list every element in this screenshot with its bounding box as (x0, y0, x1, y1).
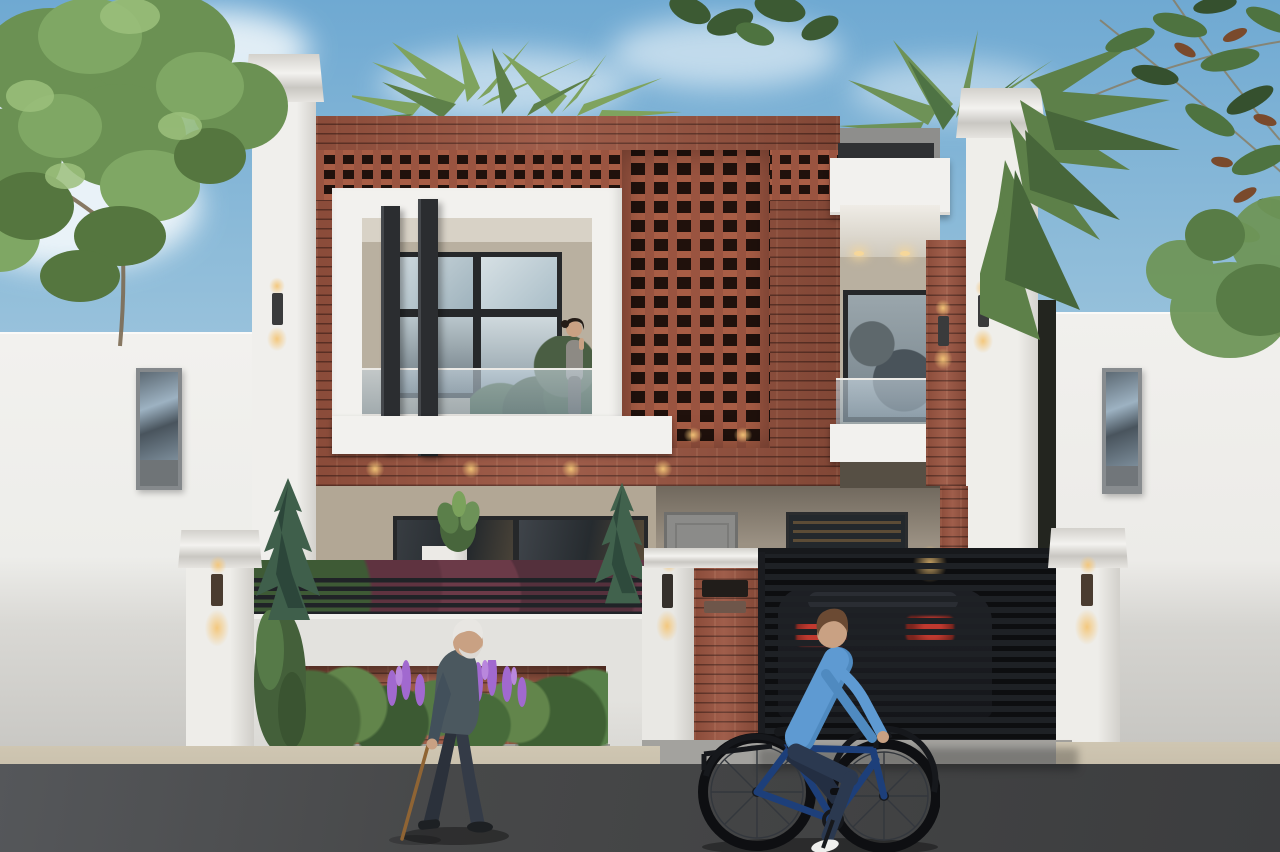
gate-top-rail (758, 548, 1072, 554)
pedestal-plant (428, 490, 490, 558)
facade-downlight-glow (362, 456, 388, 482)
gate-pillar-cap (644, 548, 766, 568)
left-tree (0, 0, 290, 356)
right-foliage (980, 0, 1280, 400)
cyclist (680, 596, 940, 852)
sconce-glow (200, 602, 234, 654)
wall-sconce (938, 316, 949, 346)
architectural-render-scene: Photorealistic render of a modern two-st… (0, 0, 1280, 852)
asphalt-road (0, 764, 1280, 852)
left-wall-window-frame (136, 368, 182, 490)
facade-downlight-glow (458, 456, 484, 482)
sconce-glow (652, 604, 682, 648)
name-plaque (702, 580, 748, 597)
right-wall-window-panel (1106, 466, 1138, 486)
jali-downlight-glow (680, 424, 706, 446)
blue-shirt (798, 660, 836, 736)
top-center-leaves (660, 0, 850, 70)
sconce-glow (1070, 602, 1104, 652)
facade-downlight-glow (650, 456, 676, 482)
right-balcony-ceiling (840, 205, 940, 257)
ceiling-downlight (900, 251, 910, 256)
facade-downlight-glow (558, 456, 584, 482)
jali-downlight-glow (730, 424, 756, 446)
left-wall-window-panel (140, 460, 178, 486)
wall-sconce (662, 574, 673, 608)
balcony-fascia (332, 416, 672, 454)
elderly-pedestrian (385, 608, 515, 848)
left-wall-window-glass (140, 372, 178, 460)
brick-jali-screen (622, 150, 770, 448)
door-transom-glass (481, 257, 557, 309)
ceiling-downlight (854, 251, 864, 256)
sconce-glow (930, 344, 956, 374)
